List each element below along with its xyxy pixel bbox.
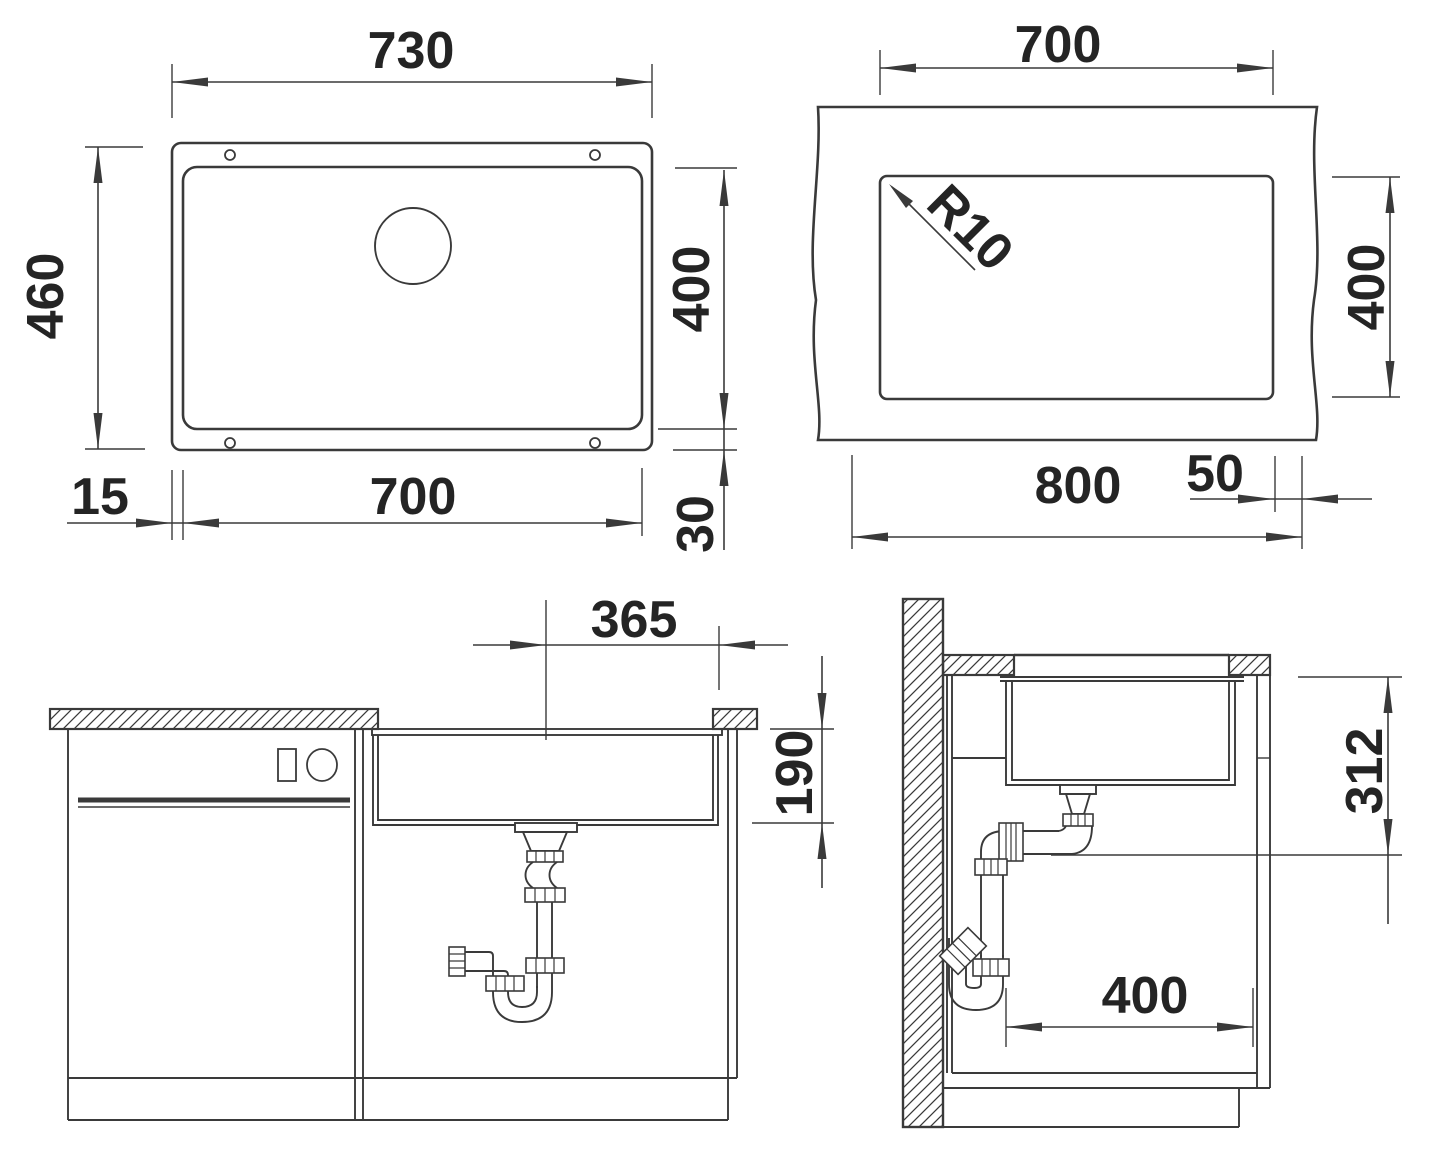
dim-bowl-depth: 190: [752, 656, 834, 888]
technical-drawing-sheet: 730 460 400 30: [0, 0, 1445, 1165]
bowl-section-side: [1000, 677, 1244, 785]
control-switch: [278, 749, 296, 781]
drain-hole: [375, 208, 451, 284]
worktop-panel-outline: [813, 107, 1318, 440]
dim-label-inner-width: 700: [370, 468, 457, 526]
bowl-section-front: [373, 735, 718, 825]
dim-label-bottom-offset: 30: [667, 495, 725, 553]
dim-label-cutout-width: 700: [1015, 16, 1102, 74]
worktop-left-section: [50, 709, 378, 729]
cabinet-front-side: [903, 675, 1270, 1127]
fixing-screw-holes: [225, 150, 600, 448]
strainer-flange: [515, 823, 577, 832]
dim-inner-depth: 400: [658, 168, 737, 550]
control-knob: [307, 749, 337, 781]
dim-side-clearance: 50: [1186, 445, 1372, 512]
dim-label-corner-radius: R10: [916, 174, 1024, 282]
side-view-drawing: 312 400: [903, 599, 1402, 1127]
dim-label-cabinet-width: 800: [1035, 457, 1122, 515]
cabinet-carcass-front: [68, 729, 737, 1120]
appliance-controls: [278, 749, 337, 781]
corner-radius-callout: R10: [889, 174, 1024, 282]
dim-drain-center-offset: 365: [473, 591, 788, 690]
dim-cutout-width: 700: [880, 16, 1273, 95]
dim-label-clearance-width: 400: [1102, 967, 1189, 1025]
dim-label-mounting-depth: 312: [1336, 728, 1394, 815]
dim-bottom-offset: 30: [667, 450, 737, 553]
dim-label-cutout-depth: 400: [1338, 244, 1396, 331]
strainer-flange-side: [1060, 785, 1096, 794]
dim-outer-width: 730: [172, 22, 652, 118]
cutout-view-drawing: R10 700 400 50: [813, 16, 1400, 549]
front-view-drawing: 365 190: [50, 591, 834, 1120]
dim-clearance-width: 400: [1006, 967, 1253, 1047]
dim-label-drain-offset: 365: [591, 591, 678, 649]
sink-rim-front: [372, 729, 722, 735]
sink-rim-outline: [172, 143, 652, 450]
dim-cutout-depth: 400: [1332, 177, 1400, 397]
drawing-canvas: 730 460 400 30: [0, 0, 1445, 1165]
dim-label-outer-width: 730: [368, 22, 455, 80]
dim-label-left-offset: 15: [71, 468, 129, 526]
dim-left-offset-and-inner-width: 15 700: [67, 468, 642, 540]
siphon-side: [940, 785, 1096, 1010]
worktop-side: [943, 655, 1270, 675]
dim-label-bowl-depth: 190: [766, 730, 824, 817]
bowl-outline: [183, 167, 642, 429]
dim-label-outer-depth: 460: [17, 253, 75, 340]
siphon-front: [449, 823, 577, 1022]
worktop-right-section: [713, 709, 757, 729]
dim-label-side-clearance: 50: [1186, 445, 1244, 503]
dim-outer-depth: 460: [17, 147, 145, 449]
wall-section: [903, 599, 943, 1127]
dim-mounting-depth: 312: [1051, 677, 1402, 924]
dim-label-inner-depth: 400: [663, 246, 721, 333]
top-view-drawing: 730 460 400 30: [17, 22, 737, 553]
